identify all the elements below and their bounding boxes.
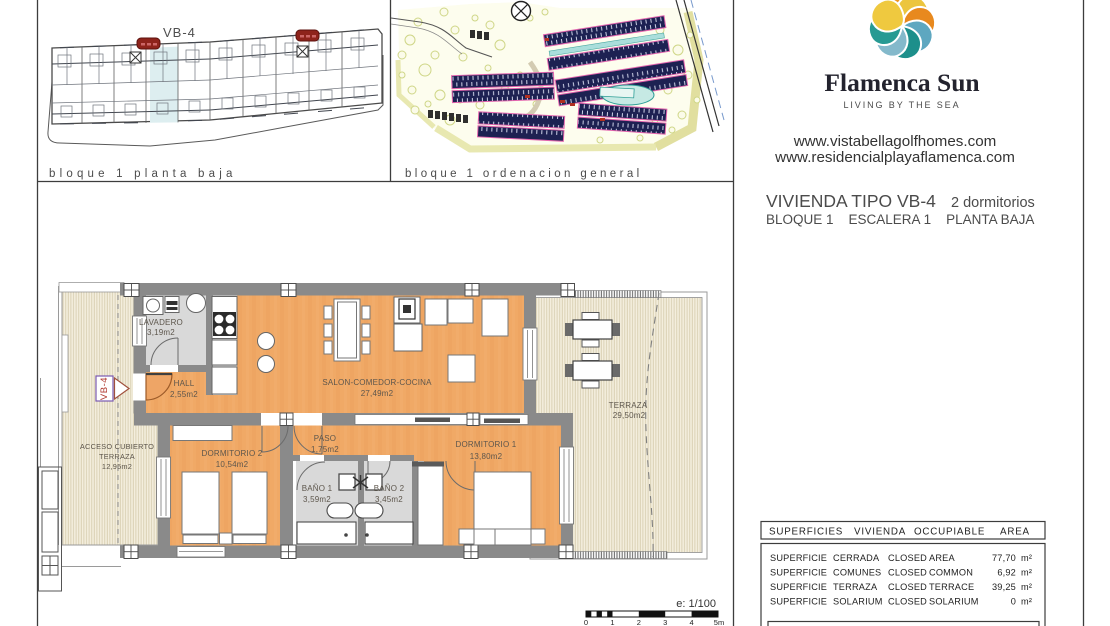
svg-text:SALON-COMEDOR-COCINA: SALON-COMEDOR-COCINA bbox=[322, 378, 432, 387]
svg-text:VIVIENDA: VIVIENDA bbox=[854, 527, 906, 538]
svg-text:SUPERFICIE: SUPERFICIE bbox=[770, 582, 827, 592]
svg-text:5m: 5m bbox=[714, 618, 724, 626]
svg-text:HALL: HALL bbox=[174, 379, 195, 388]
svg-text:SUPERFICIE: SUPERFICIE bbox=[770, 597, 827, 607]
svg-text:CERRADA: CERRADA bbox=[833, 553, 880, 563]
svg-text:0: 0 bbox=[584, 618, 588, 626]
svg-text:CLOSED: CLOSED bbox=[888, 568, 927, 578]
svg-text:COMMON: COMMON bbox=[929, 568, 973, 578]
svg-text:3,59m2: 3,59m2 bbox=[303, 495, 331, 504]
svg-text:PASO: PASO bbox=[314, 434, 336, 443]
svg-text:1,75m2: 1,75m2 bbox=[311, 445, 339, 454]
svg-text:1: 1 bbox=[610, 618, 614, 626]
svg-text:BLOQUE 1 ESCALERA 1 PLAN: BLOQUE 1 ESCALERA 1 PLANTA BAJA bbox=[766, 212, 1034, 227]
svg-text:COMUNES: COMUNES bbox=[833, 568, 881, 578]
svg-text:29,50m2: 29,50m2 bbox=[613, 411, 646, 420]
svg-text:Flamenca Sun: Flamenca Sun bbox=[824, 68, 979, 97]
svg-text:13,80m2: 13,80m2 bbox=[470, 452, 503, 461]
svg-text:m²: m² bbox=[1021, 582, 1032, 592]
svg-text:CLOSED: CLOSED bbox=[888, 582, 927, 592]
svg-text:3,45m2: 3,45m2 bbox=[375, 495, 403, 504]
svg-text:m²: m² bbox=[1021, 597, 1032, 607]
svg-text:SUPERFICIE: SUPERFICIE bbox=[770, 553, 827, 563]
svg-text:6,92: 6,92 bbox=[997, 568, 1016, 578]
svg-text:AREA: AREA bbox=[1000, 527, 1030, 538]
svg-text:SUPERFICIES: SUPERFICIES bbox=[769, 527, 843, 538]
svg-text:m²: m² bbox=[1021, 553, 1032, 563]
svg-text:27,49m2: 27,49m2 bbox=[361, 389, 394, 398]
svg-text:CLOSED: CLOSED bbox=[888, 597, 927, 607]
svg-text:bloque 1 ordenacion general: bloque 1 ordenacion general bbox=[405, 168, 643, 180]
svg-text:VIVIENDA TIPO VB-4: VIVIENDA TIPO VB-4 bbox=[766, 191, 936, 211]
svg-text:SOLARIUM: SOLARIUM bbox=[833, 597, 883, 607]
svg-text:0: 0 bbox=[1011, 597, 1016, 607]
svg-text:VB-4: VB-4 bbox=[99, 377, 110, 400]
svg-text:DORMITORIO 2: DORMITORIO 2 bbox=[202, 449, 263, 458]
svg-text:2,55m2: 2,55m2 bbox=[170, 390, 198, 399]
svg-text:TERRACE: TERRACE bbox=[929, 582, 974, 592]
svg-text:ACCESO CUBIERTO: ACCESO CUBIERTO bbox=[80, 442, 154, 451]
svg-text:www.vistabellagolfhomes.com: www.vistabellagolfhomes.com bbox=[793, 133, 997, 150]
svg-text:12,95m2: 12,95m2 bbox=[102, 462, 132, 471]
svg-text:VB-4: VB-4 bbox=[163, 25, 196, 40]
svg-text:SUPERFICIE: SUPERFICIE bbox=[770, 568, 827, 578]
svg-text:3: 3 bbox=[663, 618, 667, 626]
svg-text:e: 1/100: e: 1/100 bbox=[676, 598, 716, 610]
svg-text:LIVING BY THE SEA: LIVING BY THE SEA bbox=[843, 100, 960, 110]
svg-text:77,70: 77,70 bbox=[992, 553, 1016, 563]
svg-text:LAVADERO: LAVADERO bbox=[139, 318, 183, 327]
svg-text:10,54m2: 10,54m2 bbox=[216, 460, 249, 469]
svg-text:m²: m² bbox=[1021, 568, 1032, 578]
svg-text:OCCUPIABLE: OCCUPIABLE bbox=[914, 527, 985, 538]
svg-text:SOLARIUM: SOLARIUM bbox=[929, 597, 979, 607]
svg-text:TERRAZA: TERRAZA bbox=[99, 452, 135, 461]
svg-text:DORMITORIO 1: DORMITORIO 1 bbox=[456, 440, 517, 449]
svg-text:4: 4 bbox=[690, 618, 694, 626]
svg-text:CLOSED: CLOSED bbox=[888, 553, 927, 563]
svg-text:2 dormitorios: 2 dormitorios bbox=[951, 195, 1035, 211]
svg-text:3,19m2: 3,19m2 bbox=[147, 328, 175, 337]
svg-text:39,25: 39,25 bbox=[992, 582, 1016, 592]
svg-text:AREA: AREA bbox=[929, 553, 955, 563]
svg-text:www.residencialplayaflamenca.c: www.residencialplayaflamenca.com bbox=[774, 149, 1015, 166]
svg-text:BAÑO 1: BAÑO 1 bbox=[302, 484, 333, 493]
svg-text:BAÑO 2: BAÑO 2 bbox=[374, 484, 405, 493]
svg-text:TERRAZA: TERRAZA bbox=[833, 582, 878, 592]
svg-text:bloque 1 planta baja: bloque 1 planta baja bbox=[49, 168, 237, 180]
svg-text:2: 2 bbox=[637, 618, 641, 626]
svg-text:TERRAZA: TERRAZA bbox=[609, 401, 648, 410]
